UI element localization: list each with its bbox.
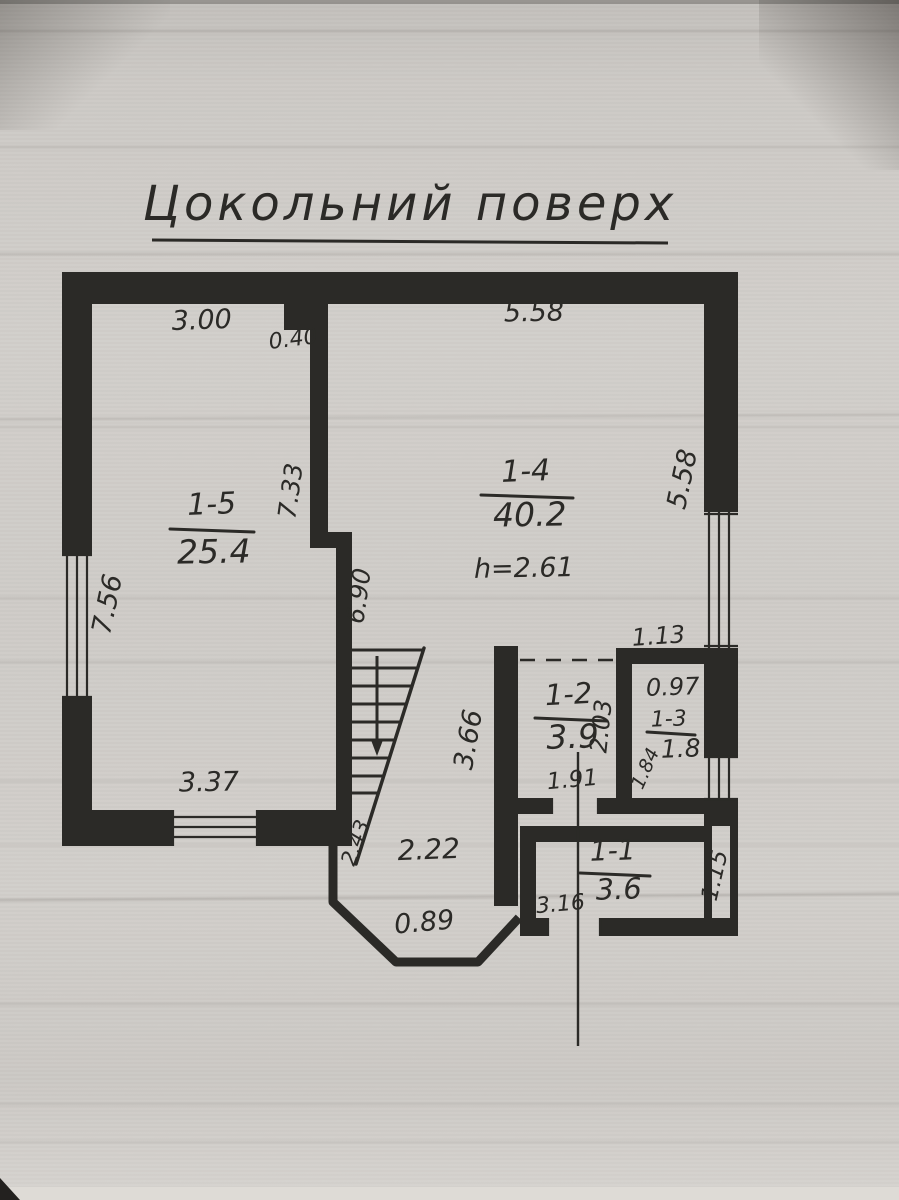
room-1-2-area: 3.9: [546, 716, 600, 757]
room-1-3-area: 1.8: [660, 733, 701, 763]
stair-arrowhead: [371, 740, 383, 756]
wall-left-upper: [62, 272, 92, 554]
title-underline: [152, 240, 668, 243]
room-1-5-id: 1-5: [187, 486, 237, 523]
stair-treads: [352, 650, 423, 793]
wall-right-low: [704, 800, 738, 826]
wall-11-bottom-a: [520, 918, 548, 936]
room-1-5-area: 25.4: [177, 531, 251, 571]
window-right-lower: [704, 756, 738, 800]
dim-bottom-window: 3.37: [179, 766, 240, 798]
dim-11-bottom: 3.16: [535, 890, 586, 919]
room-1-3-id: 1-3: [650, 706, 687, 732]
room-1-1-area: 3.6: [595, 871, 642, 907]
dim-right-wall: 5.58: [661, 447, 704, 512]
wall-11-bottom-b: [600, 918, 738, 936]
dim-bay-width: 2.22: [397, 832, 460, 867]
room-1-1-id: 1-1: [589, 833, 636, 868]
floor-plan-photo: Цокольний поверх 3.00 0.40 5.58 7.56 1-5…: [0, 0, 899, 1200]
dim-left-wall: 7.56: [86, 572, 129, 637]
dim-mid-wall-left: 7.33: [272, 461, 308, 520]
room-1-4-area: 40.2: [493, 494, 567, 534]
dim-13-side: 1.84: [627, 745, 664, 793]
room-1-4-height-note: h=2.61: [474, 552, 574, 585]
dim-hall-height: 3.66: [448, 707, 489, 772]
dim-top-left: 3.00: [171, 304, 232, 337]
dim-bay-bottom: 0.89: [393, 904, 456, 940]
wall-12-bottom-a: [494, 798, 552, 814]
wall-top: [66, 272, 738, 304]
wall-bottom-left-a: [62, 810, 172, 846]
room-1-4-id: 1-4: [501, 453, 551, 490]
room-1-2-id: 1-2: [544, 676, 593, 712]
window-bottom-left: [172, 810, 258, 846]
dim-shaft-top: 1.13: [631, 620, 686, 652]
dim-shaft-inner: 0.97: [646, 672, 701, 702]
window-right-upper: [704, 512, 738, 648]
floor-plan-drawing: Цокольний поверх 3.00 0.40 5.58 7.56 1-5…: [0, 0, 899, 1200]
wall-bottom-left-b: [258, 810, 346, 846]
wall-12-bottom-b: [598, 798, 706, 814]
dim-11-right: 1.15: [697, 848, 734, 904]
wall-12-left: [494, 646, 518, 906]
dim-12-door: 1.91: [546, 765, 599, 795]
dim-top-right: 5.58: [504, 296, 565, 328]
wall-right-mid: [704, 648, 738, 756]
wall-right-top: [704, 272, 738, 512]
page-title: Цокольний поверх: [143, 176, 677, 232]
